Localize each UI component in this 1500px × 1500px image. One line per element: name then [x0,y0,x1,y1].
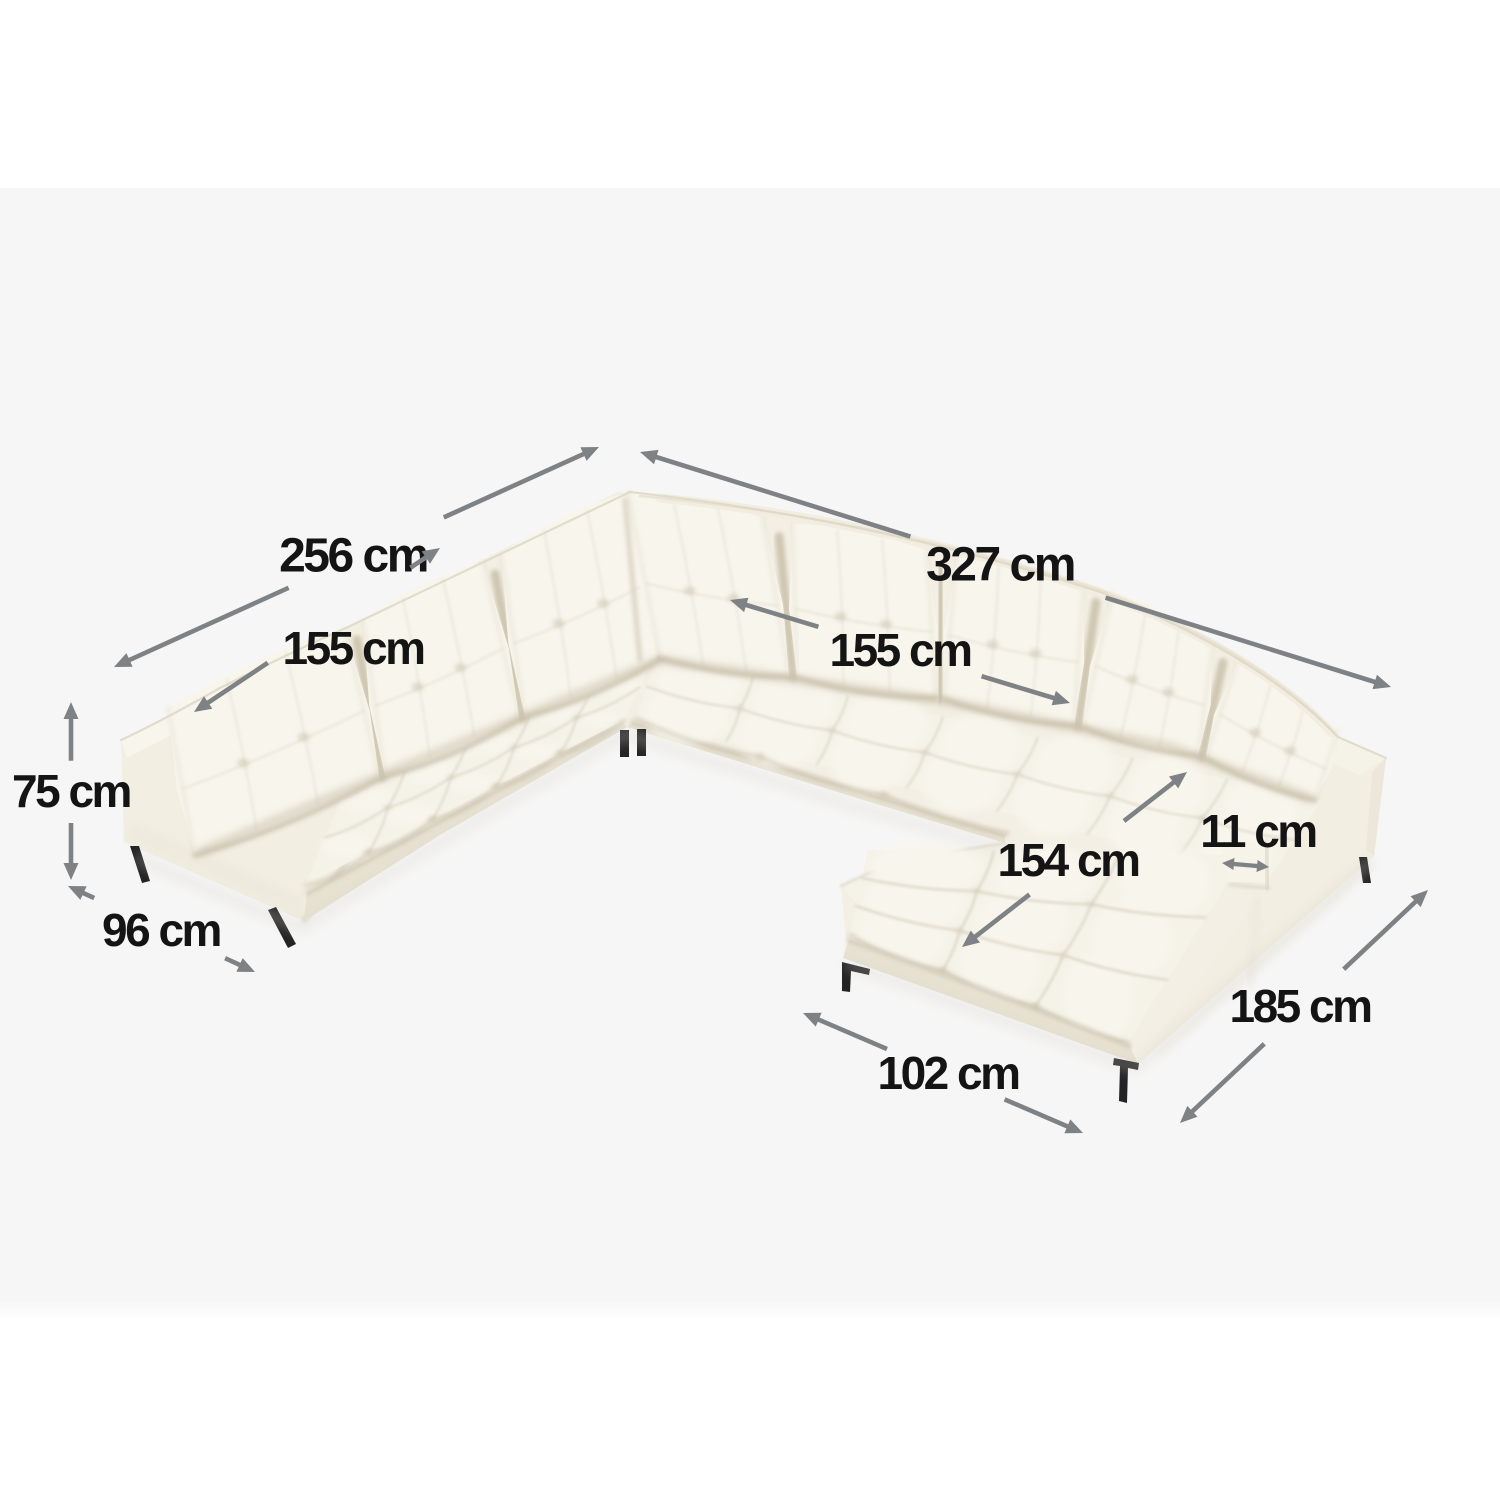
svg-text:327 cm: 327 cm [926,539,1074,592]
svg-text:11 cm: 11 cm [1200,805,1316,857]
svg-text:256 cm: 256 cm [279,530,427,583]
svg-text:154 cm: 154 cm [997,834,1139,886]
svg-text:96 cm: 96 cm [102,904,221,956]
svg-text:155 cm: 155 cm [829,624,971,676]
svg-text:185 cm: 185 cm [1229,980,1371,1032]
svg-text:75 cm: 75 cm [12,765,131,817]
svg-text:102 cm: 102 cm [877,1047,1019,1099]
svg-text:155 cm: 155 cm [282,622,424,674]
